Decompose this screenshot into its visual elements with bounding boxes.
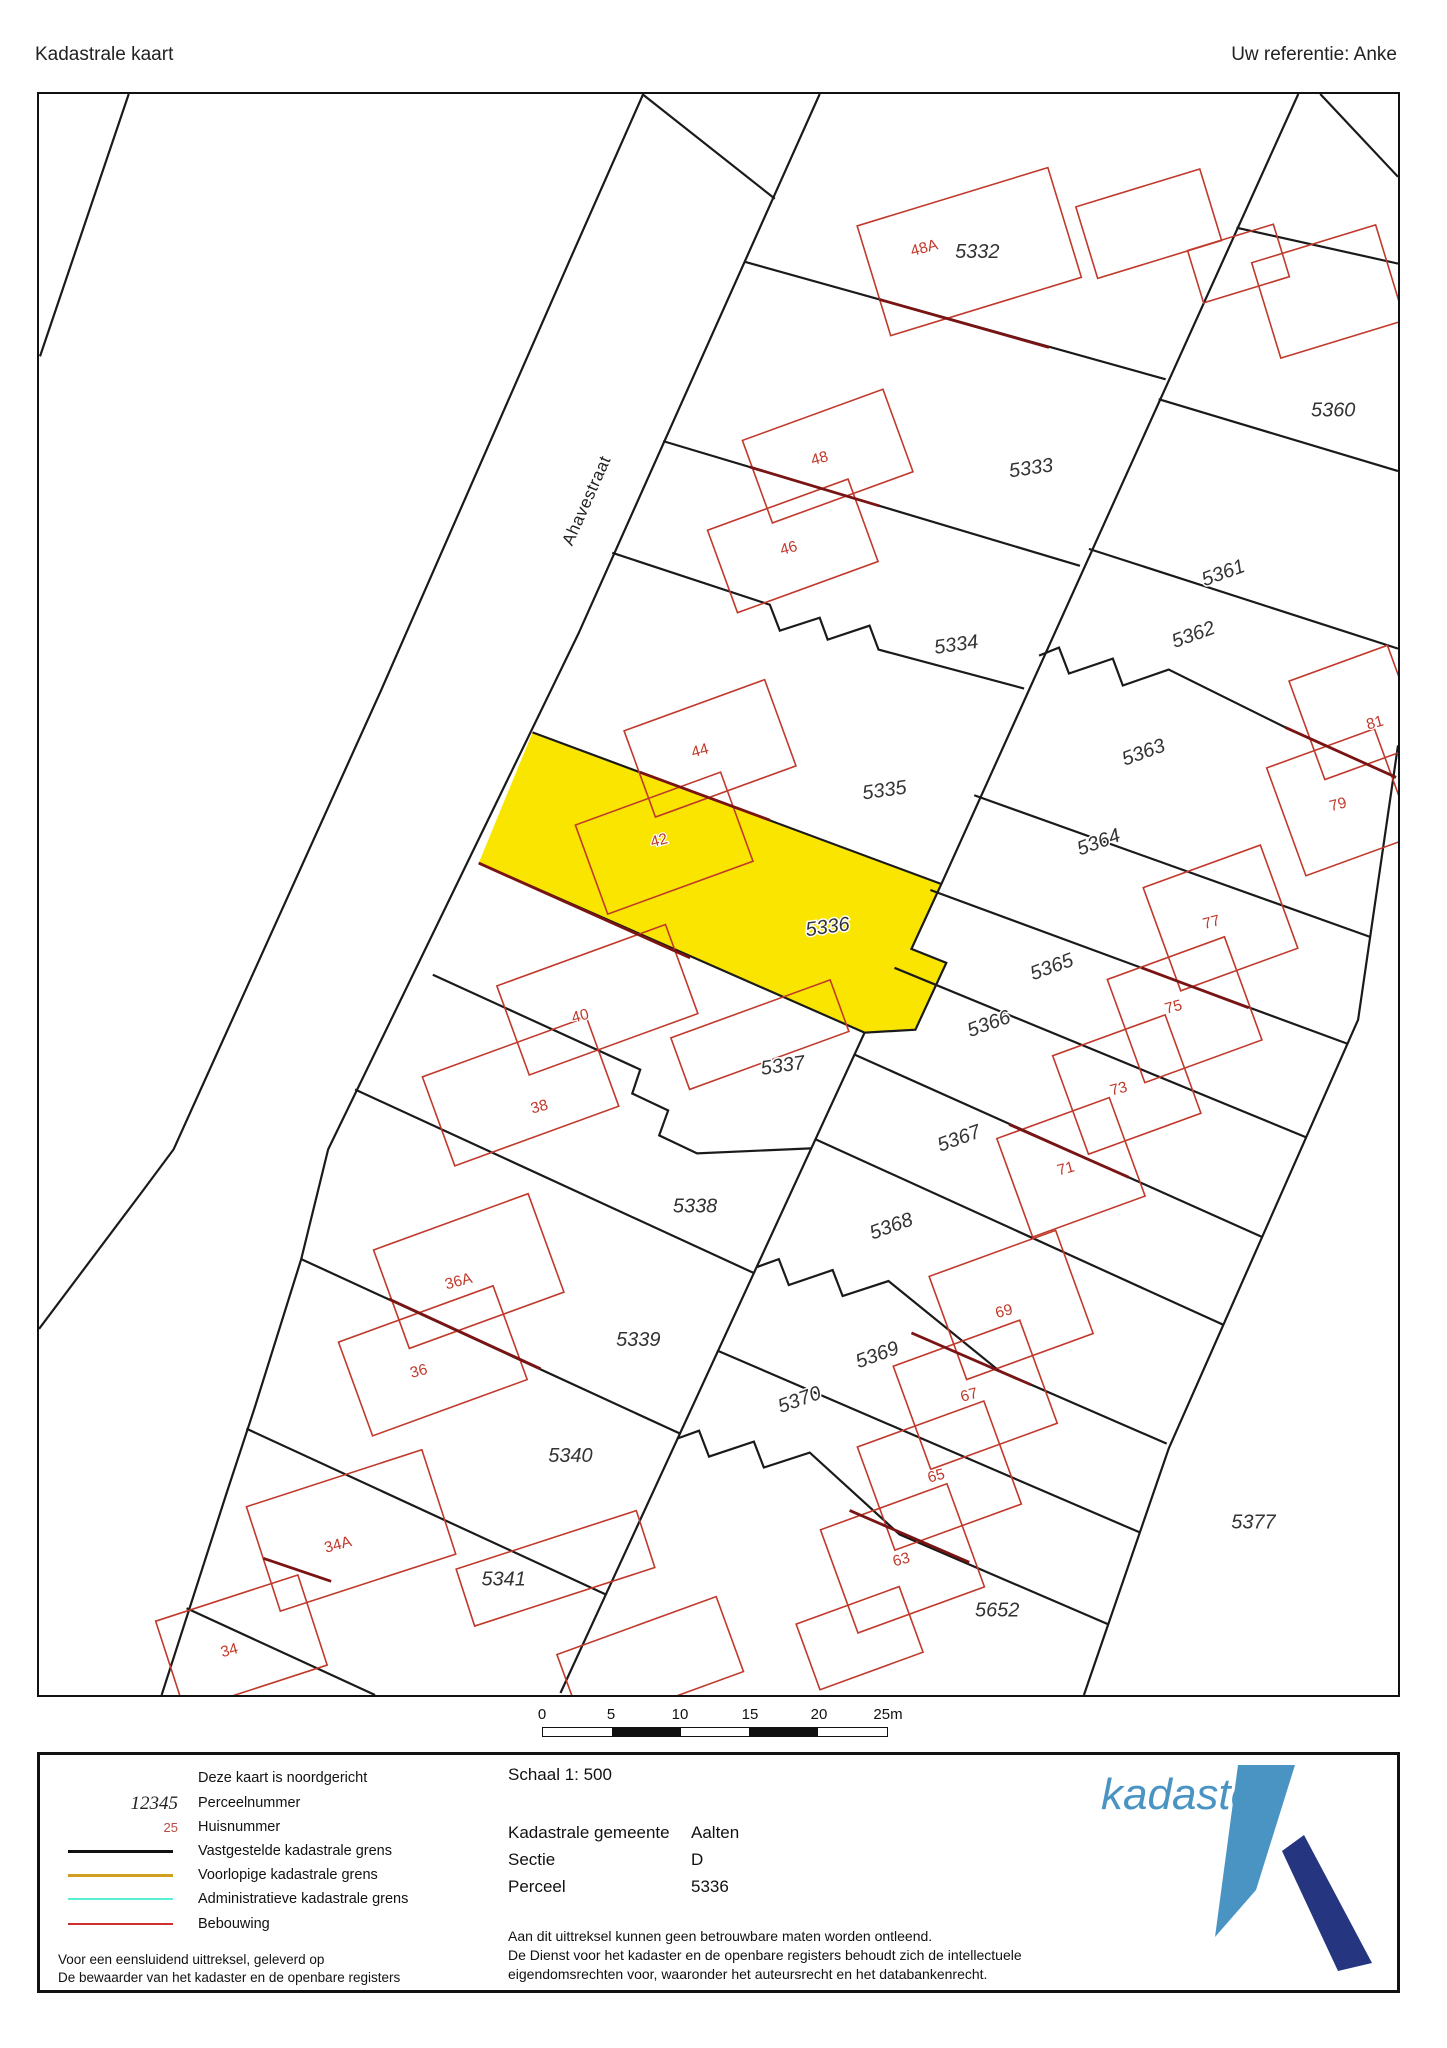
- parcel-label: 5340: [548, 1445, 592, 1467]
- house-label: 40: [570, 1006, 591, 1027]
- house-label: 73: [1108, 1079, 1129, 1100]
- vastgestelde-grens-line: [68, 1850, 173, 1853]
- parcel-label: 5333: [1007, 454, 1054, 482]
- house-label: 69: [994, 1301, 1015, 1322]
- scale-bar-ticks: 0 5 10 15 20 25m: [542, 1706, 888, 1724]
- house-number-legend-label: Huisnummer: [198, 1819, 280, 1835]
- house-label: 34A: [323, 1533, 355, 1557]
- voorlopige-grens-line: [68, 1874, 173, 1877]
- parcel-label: 5335: [861, 776, 909, 804]
- parcel-label: 5366: [964, 1006, 1014, 1042]
- house-label: 36A: [443, 1270, 475, 1294]
- administratieve-grens-label: Administratieve kadastrale grens: [198, 1891, 408, 1907]
- house-label: 65: [926, 1466, 947, 1487]
- disclaimer-line-2: De Dienst voor het kadaster en de openba…: [508, 1947, 1022, 1963]
- administratieve-grens-line: [68, 1898, 173, 1900]
- parcel-label: 5338: [673, 1195, 717, 1217]
- parcel-label: 5362: [1169, 617, 1218, 653]
- parcel-label: 5332: [955, 241, 999, 263]
- bebouwing-label: Bebouwing: [198, 1916, 270, 1932]
- highlight-parcel-5336: [479, 732, 947, 1032]
- bebouwing-line: [68, 1923, 173, 1925]
- house-label: 77: [1201, 912, 1222, 933]
- scale-tick: 25m: [873, 1706, 902, 1723]
- scale-segment: [681, 1728, 750, 1736]
- house-label: 44: [689, 740, 710, 761]
- house-label: 48: [809, 448, 830, 469]
- kadaster-logo: kadaster: [1095, 1761, 1395, 1989]
- gemeente-label: Kadastrale gemeente: [508, 1823, 670, 1843]
- legend-box: Deze kaart is noordgericht 12345 Perceel…: [37, 1752, 1400, 1993]
- parcel-label: 5367: [934, 1120, 984, 1156]
- house-label: 75: [1163, 997, 1184, 1018]
- parcel-label: 5339: [616, 1329, 660, 1351]
- house-label: 36: [408, 1361, 429, 1382]
- scale-segment: [612, 1728, 681, 1736]
- parcel-label: 5368: [867, 1209, 916, 1245]
- parcel-number-legend-label: Perceelnummer: [198, 1795, 300, 1811]
- cadastral-map: Ahavestraat 5332 5333 5334 5335 5336 533…: [37, 92, 1400, 1697]
- parcel-label: 5652: [975, 1599, 1019, 1621]
- parcel-label: 5364: [1074, 825, 1123, 861]
- parcel-label: 5365: [1027, 949, 1077, 985]
- north-note: Deze kaart is noordgericht: [198, 1770, 367, 1786]
- scale-bar-graphic: [542, 1727, 888, 1737]
- disclaimer-line-3: eigendomsrechten voor, waaronder het aut…: [508, 1966, 987, 1982]
- scale-segment: [543, 1728, 612, 1736]
- footnote-2: De bewaarder van het kadaster en de open…: [58, 1970, 400, 1985]
- street-label: Ahavestraat: [558, 453, 614, 548]
- scale-segment: [749, 1728, 818, 1736]
- voorlopige-grens-label: Voorlopige kadastrale grens: [198, 1867, 378, 1883]
- vastgestelde-grens-label: Vastgestelde kadastrale grens: [198, 1843, 392, 1859]
- house-number-sample: 25: [88, 1820, 178, 1835]
- page-title: Kadastrale kaart: [35, 44, 173, 66]
- perceel-label: Perceel: [508, 1877, 566, 1897]
- parcel-number-sample: 12345: [88, 1793, 178, 1815]
- kadaster-logo-dark-blade: [1282, 1835, 1372, 1971]
- gemeente-value: Aalten: [691, 1823, 739, 1843]
- house-label: 81: [1364, 713, 1385, 734]
- sectie-value: D: [691, 1850, 703, 1870]
- scale-tick: 20: [811, 1706, 828, 1723]
- scale-tick: 0: [538, 1706, 546, 1723]
- parcel-label: 5334: [933, 631, 980, 659]
- parcel-label: 5337: [759, 1052, 807, 1080]
- house-label: 38: [529, 1097, 550, 1118]
- map-canvas: Ahavestraat 5332 5333 5334 5335 5336 533…: [39, 94, 1398, 1695]
- scale-bar: 0 5 10 15 20 25m: [542, 1706, 888, 1737]
- parcel-label: 5361: [1199, 555, 1248, 591]
- scale-tick: 10: [672, 1706, 689, 1723]
- parcel-label: 5360: [1311, 399, 1355, 421]
- sectie-label: Sectie: [508, 1850, 555, 1870]
- kadaster-extract-page: Kadastrale kaart Uw referentie: Anke: [0, 0, 1447, 2048]
- house-label: 63: [891, 1549, 912, 1570]
- parcel-label: 5363: [1119, 735, 1168, 771]
- house-label: 67: [959, 1385, 980, 1406]
- house-label: 34: [219, 1640, 240, 1661]
- house-label: 48A: [909, 236, 941, 260]
- house-label: 71: [1055, 1158, 1076, 1179]
- scale-text: Schaal 1: 500: [508, 1765, 612, 1785]
- parcel-label: 5370: [775, 1382, 824, 1418]
- disclaimer-line-1: Aan dit uittreksel kunnen geen betrouwba…: [508, 1928, 932, 1944]
- scale-tick: 15: [742, 1706, 759, 1723]
- reference-text: Uw referentie: Anke: [1231, 44, 1397, 66]
- parcel-label: 5341: [481, 1569, 525, 1591]
- house-label: 46: [778, 538, 799, 559]
- scale-tick: 5: [607, 1706, 615, 1723]
- parcel-label: 5377: [1231, 1512, 1276, 1534]
- house-label: 79: [1328, 794, 1349, 815]
- scale-segment: [818, 1728, 887, 1736]
- perceel-value: 5336: [691, 1877, 729, 1897]
- footnote-1: Voor een eensluidend uittreksel, gelever…: [58, 1952, 324, 1967]
